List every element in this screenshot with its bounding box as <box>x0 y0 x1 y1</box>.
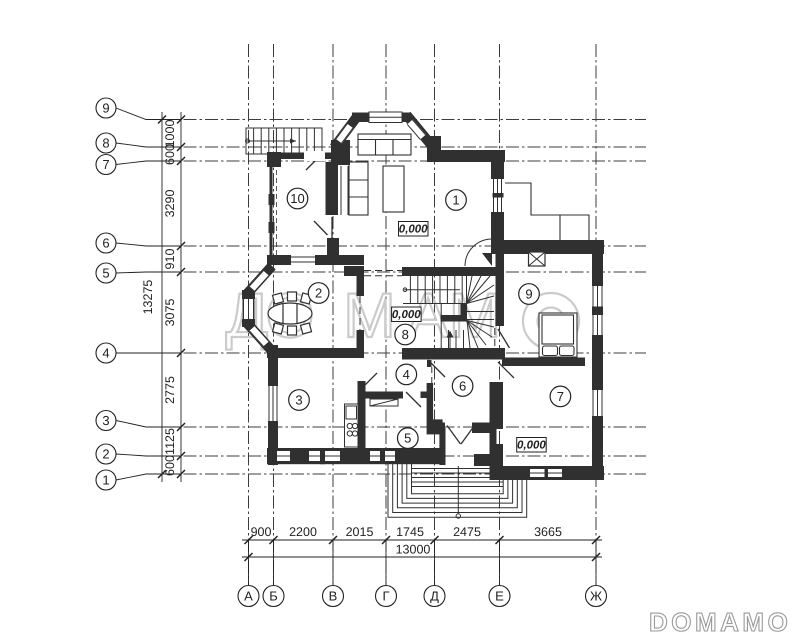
svg-text:1745: 1745 <box>396 525 424 539</box>
svg-text:1000: 1000 <box>163 120 177 148</box>
svg-text:DOMAMO: DOMAMO <box>649 607 791 637</box>
svg-text:Б: Б <box>269 589 278 604</box>
svg-text:2200: 2200 <box>289 525 317 539</box>
svg-text:2775: 2775 <box>163 376 177 404</box>
svg-text:5: 5 <box>102 266 109 281</box>
svg-text:1125: 1125 <box>163 428 177 455</box>
svg-text:13275: 13275 <box>141 280 155 315</box>
svg-text:Д: Д <box>430 589 439 604</box>
svg-text:В: В <box>329 589 338 604</box>
svg-text:10: 10 <box>290 191 304 206</box>
svg-text:3: 3 <box>295 393 302 408</box>
svg-text:13000: 13000 <box>396 543 431 557</box>
svg-text:900: 900 <box>251 525 272 539</box>
svg-text:8: 8 <box>402 327 409 342</box>
svg-text:3665: 3665 <box>534 525 562 539</box>
svg-text:5: 5 <box>404 431 411 446</box>
svg-text:3: 3 <box>102 413 109 428</box>
svg-text:2015: 2015 <box>346 525 374 539</box>
svg-text:6: 6 <box>459 379 466 394</box>
svg-text:9: 9 <box>102 101 109 116</box>
svg-text:1: 1 <box>102 473 109 488</box>
svg-text:2475: 2475 <box>453 525 481 539</box>
svg-text:0,000: 0,000 <box>392 309 421 321</box>
svg-text:3290: 3290 <box>163 190 177 218</box>
svg-text:7: 7 <box>557 389 564 404</box>
svg-text:4: 4 <box>102 346 109 361</box>
svg-text:910: 910 <box>163 249 177 270</box>
svg-text:2: 2 <box>102 447 109 462</box>
svg-text:600: 600 <box>163 455 177 476</box>
svg-text:600: 600 <box>163 144 177 165</box>
svg-text:3075: 3075 <box>163 299 177 327</box>
svg-text:Е: Е <box>495 589 504 604</box>
svg-text:0,000: 0,000 <box>517 440 546 452</box>
svg-text:0,000: 0,000 <box>399 224 428 236</box>
svg-text:7: 7 <box>102 157 109 172</box>
svg-text:1: 1 <box>452 193 459 208</box>
svg-text:6: 6 <box>102 236 109 251</box>
svg-text:2: 2 <box>315 286 322 301</box>
svg-text:4: 4 <box>403 367 410 382</box>
svg-text:Ж: Ж <box>590 589 602 604</box>
svg-text:9: 9 <box>525 287 532 302</box>
svg-text:Г: Г <box>382 589 389 604</box>
svg-text:А: А <box>244 589 253 604</box>
svg-text:8: 8 <box>102 136 109 151</box>
svg-text:М: М <box>343 281 395 351</box>
